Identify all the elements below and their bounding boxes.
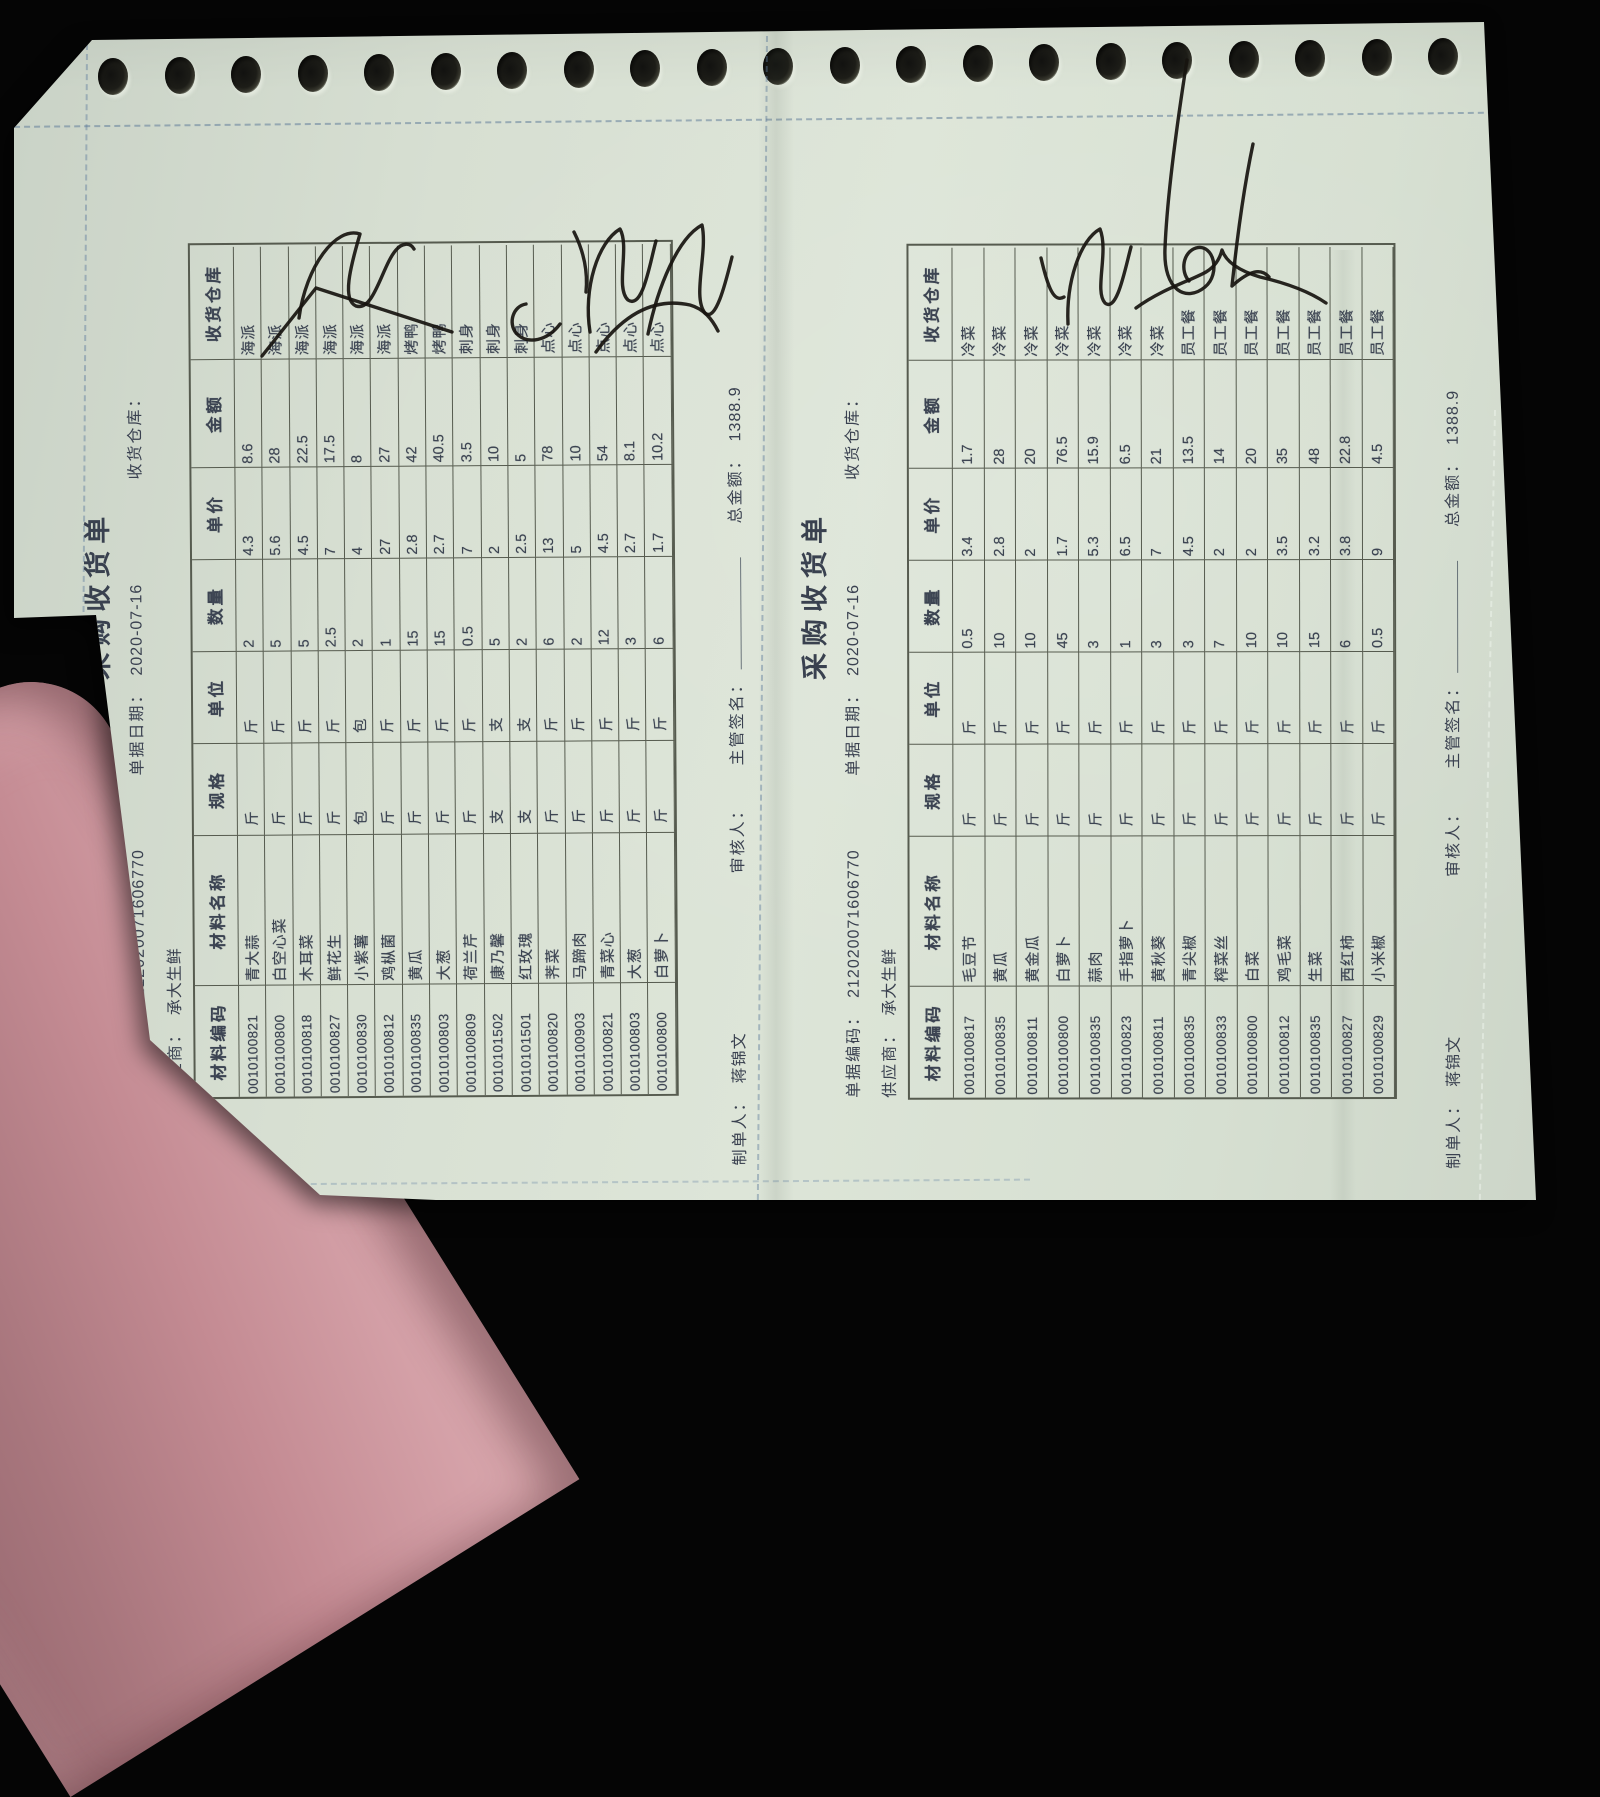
table-cell: 海派 — [316, 246, 344, 358]
table-cell: 斤 — [565, 740, 593, 832]
preparer-value: 蒋锦文 — [1446, 1036, 1463, 1087]
table-cell: 斤 — [319, 650, 347, 742]
table-cell: 斤 — [1300, 743, 1332, 835]
perforation-line-bottom — [150, 1179, 1030, 1186]
table-cell: 0010100835 — [1174, 985, 1206, 1097]
table-cell: 21 — [1142, 359, 1174, 467]
table-cell: 0010100800 — [648, 982, 676, 1094]
table-cell: 2.5 — [508, 465, 536, 557]
table-cell: 斤 — [646, 648, 674, 740]
table-cell: 2 — [236, 559, 264, 651]
total-field: 总金额：1388.9 — [1439, 390, 1463, 527]
table-cell: 0010100827 — [1332, 985, 1364, 1097]
table-cell: 0010100830 — [348, 984, 376, 1096]
table-cell: 15 — [400, 558, 428, 650]
table-cell: 荠菜 — [538, 833, 566, 983]
doc-date-label: 单据日期： — [845, 686, 862, 776]
table-cell: 斤 — [592, 740, 620, 832]
table-cell: 木耳菜 — [293, 834, 321, 984]
column-header: 单位 — [909, 652, 953, 744]
table-cell: 海派 — [288, 246, 316, 358]
table-cell: 2 — [1236, 467, 1268, 559]
items-table: 材料编码材料名称规格单位数量单价金额收货仓库 0010100817毛豆节斤斤0.… — [906, 243, 1396, 1100]
preparer-label: 制单人： — [1446, 1097, 1463, 1169]
table-cell: 冷菜 — [1078, 247, 1110, 359]
table-cell: 斤 — [1142, 743, 1174, 835]
preparer-value: 蒋锦文 — [731, 1032, 748, 1083]
table-cell: 10 — [1268, 559, 1300, 651]
table-cell: 冷菜 — [952, 248, 984, 360]
table-cell: 10.2 — [644, 356, 672, 464]
table-cell: 斤 — [1016, 652, 1048, 744]
table-cell: 1.7 — [953, 360, 985, 468]
table-cell: 马蹄肉 — [566, 832, 594, 982]
doc-code-value: 212020071606770 — [846, 849, 863, 998]
doc-code-label: 单据编码： — [846, 1008, 863, 1098]
column-header: 收货仓库 — [190, 247, 235, 359]
column-header: 数量 — [192, 559, 237, 651]
doc-code-value: 212020071606770 — [130, 849, 148, 998]
table-cell: 斤 — [953, 744, 985, 836]
table-cell: 斤 — [985, 744, 1017, 836]
receipt-page-right: 采购收货单 单据编码：212020071606770 单据日期：2020-07-… — [790, 47, 1492, 1128]
table-cell: 8.6 — [235, 359, 263, 467]
column-header: 规格 — [193, 743, 238, 835]
doc-code-field: 单据编码：212020071606770 — [124, 849, 150, 1098]
table-cell: 青菜心 — [593, 832, 621, 982]
manager-signature-field: 主管签名： — [722, 557, 747, 765]
table-cell: 冷菜 — [984, 248, 1016, 360]
table-cell: 6 — [645, 556, 673, 648]
table-cell: 青尖椒 — [1174, 835, 1206, 985]
table-cell: 斤 — [564, 648, 592, 740]
table-cell: 斤 — [619, 648, 647, 740]
column-header: 单价 — [909, 468, 953, 560]
signature-line — [727, 557, 742, 669]
table-cell: 1.7 — [645, 464, 673, 556]
table-cell: 斤 — [428, 741, 456, 833]
table-cell: 5 — [263, 559, 291, 651]
table-cell: 0.5 — [454, 557, 482, 649]
table-cell: 0010100833 — [1206, 985, 1238, 1097]
registration-tick — [1350, 4, 1352, 18]
table-cell: 海派 — [261, 247, 289, 359]
table-cell: 鲜花生 — [320, 834, 348, 984]
table-cell: 黄瓜 — [402, 834, 430, 984]
table-cell: 3.5 — [1268, 467, 1300, 559]
preparer-field: 制单人：蒋锦文 — [725, 1032, 750, 1165]
column-header: 收货仓库 — [908, 248, 952, 360]
table-cell: 6.5 — [1110, 467, 1142, 559]
table-cell: 白萝卜 — [647, 832, 675, 982]
table-cell: 10 — [1016, 560, 1048, 652]
table-cell: 6 — [1331, 559, 1363, 651]
table-cell: 手指萝卜 — [1111, 835, 1143, 985]
photo-scene: 采购收货单 单据编码：212020071606770 单据日期：2020-07-… — [0, 0, 1600, 1200]
manager-signature-label: 主管签名： — [1445, 679, 1462, 769]
table-cell: 2.8 — [984, 468, 1016, 560]
table-cell: 4 — [345, 466, 373, 558]
table-cell: 冷菜 — [1047, 247, 1079, 359]
table-cell: 斤 — [373, 650, 401, 742]
table-cell: 35 — [1268, 359, 1300, 467]
table-cell: 斤 — [428, 649, 456, 741]
manager-signature-label: 主管签名： — [729, 675, 747, 765]
table-cell: 0010100835 — [1080, 985, 1112, 1097]
table-cell: 5 — [482, 557, 510, 649]
table-cell: 斤 — [1174, 651, 1206, 743]
table-cell: 斤 — [592, 648, 620, 740]
table-cell: 斤 — [401, 742, 429, 834]
column-header: 材料名称 — [194, 835, 239, 985]
table-cell: 2.7 — [618, 464, 646, 556]
table-cell: 斤 — [292, 742, 320, 834]
table-cell: 0.5 — [1363, 559, 1395, 651]
table-cell: 0010100827 — [321, 984, 349, 1096]
column-header: 金额 — [191, 359, 236, 467]
total-field: 总金额：1388.9 — [721, 386, 746, 523]
table-cell: 22.5 — [289, 358, 317, 466]
table-cell: 7 — [1205, 559, 1237, 651]
table-cell: 点心 — [616, 244, 644, 356]
table-cell: 小米椒 — [1363, 835, 1395, 985]
table-cell: 海派 — [343, 246, 371, 358]
table-cell: 斤 — [1205, 743, 1237, 835]
warehouse-label: 收货仓库： — [127, 390, 145, 480]
supplier-field: 供应商：承大生鲜 — [161, 947, 186, 1097]
table-cell: 红玫瑰 — [511, 833, 539, 983]
table-cell: 5 — [508, 357, 536, 465]
table-cell: 13 — [536, 465, 564, 557]
table-cell: 包 — [347, 742, 375, 834]
table-cell: 2.8 — [399, 466, 427, 558]
table-cell: 榨菜丝 — [1205, 835, 1237, 985]
total-label: 总金额： — [727, 451, 745, 523]
table-cell: 4.5 — [1173, 467, 1205, 559]
supplier-value: 承大生鲜 — [882, 948, 899, 1016]
table-cell: 0010100800 — [1237, 985, 1269, 1097]
table-cell: 12 — [591, 556, 619, 648]
table-header-row: 材料编码材料名称规格单位数量单价金额收货仓库 — [190, 245, 240, 1097]
table-cell: 3 — [618, 556, 646, 648]
table-cell: 支 — [482, 649, 510, 741]
table-cell: 烤鸭 — [425, 245, 453, 357]
table-cell: 0010100817 — [954, 986, 986, 1098]
table-cell: 斤 — [237, 651, 265, 743]
table-cell: 斤 — [1048, 651, 1080, 743]
table-cell: 小紫薯 — [347, 834, 375, 984]
table-cell: 5 — [291, 558, 319, 650]
table-cell: 大葱 — [620, 832, 648, 982]
table-cell: 15 — [1300, 559, 1332, 651]
table-cell: 毛豆节 — [953, 836, 985, 986]
table-cell: 0010100835 — [985, 986, 1017, 1098]
table-cell: 4.5 — [1362, 359, 1394, 467]
registration-tick — [806, 10, 808, 24]
table-cell: 黄瓜 — [985, 836, 1017, 986]
table-body: 0010100817毛豆节斤斤0.53.41.7冷菜0010100835黄瓜斤斤… — [952, 245, 1394, 1098]
table-cell: 0010100818 — [294, 984, 322, 1096]
table-cell: 蒜肉 — [1079, 835, 1111, 985]
table-cell: 2.5 — [318, 558, 346, 650]
table-cell: 刺身 — [507, 245, 535, 357]
table-body: 0010100821青大蒜斤斤24.38.6海派0010100800白空心菜斤斤… — [234, 242, 677, 1097]
table-cell: 28 — [984, 360, 1016, 468]
table-cell: 6 — [536, 557, 564, 649]
table-cell: 0010100800 — [1048, 985, 1080, 1097]
table-cell: 斤 — [1331, 651, 1363, 743]
table-cell: 斤 — [1237, 651, 1269, 743]
table-cell: 3 — [1142, 559, 1174, 651]
table-cell: 斤 — [237, 743, 265, 835]
table-cell: 西红柿 — [1331, 835, 1363, 985]
table-cell: 0010100829 — [1363, 985, 1395, 1097]
preparer-field: 制单人：蒋锦文 — [1440, 1036, 1464, 1169]
table-cell: 27 — [371, 358, 399, 466]
total-value: 1388.9 — [1445, 390, 1462, 445]
table-cell: 0010100811 — [1143, 985, 1175, 1097]
table-cell: 斤 — [456, 741, 484, 833]
table-cell: 40.5 — [426, 357, 454, 465]
table-cell: 点心 — [643, 244, 671, 356]
table-cell: 0010100835 — [403, 984, 431, 1096]
table-cell: 斤 — [1142, 651, 1174, 743]
table-cell: 1 — [373, 558, 401, 650]
table-cell: 烤鸭 — [398, 246, 426, 358]
page-title: 采购收货单 — [793, 510, 832, 680]
table-cell: 5 — [563, 464, 591, 556]
table-cell: 17.5 — [317, 358, 345, 466]
table-cell: 斤 — [1048, 743, 1080, 835]
table-cell: 20 — [1016, 360, 1048, 468]
table-cell: 荷兰芹 — [456, 833, 484, 983]
preparer-label: 制单人： — [732, 1093, 750, 1165]
column-header: 规格 — [909, 744, 953, 836]
table-cell: 斤 — [985, 652, 1017, 744]
manager-signature-field: 主管签名： — [1439, 561, 1463, 769]
table-cell: 斤 — [1079, 743, 1111, 835]
table-cell: 鸡枞菌 — [374, 834, 402, 984]
table-cell: 鸡毛菜 — [1268, 835, 1300, 985]
table-cell: 斤 — [619, 740, 647, 832]
column-header: 材料编码 — [195, 985, 240, 1097]
table-cell: 14 — [1205, 359, 1237, 467]
table-cell: 冷菜 — [1110, 247, 1142, 359]
registration-tick — [688, 8, 690, 22]
table-cell: 点心 — [534, 245, 562, 357]
table-cell: 支 — [510, 741, 538, 833]
table-cell: 13.5 — [1173, 359, 1205, 467]
table-cell: 0010100903 — [567, 982, 595, 1094]
table-cell: 斤 — [1331, 743, 1363, 835]
table-cell: 0010101501 — [512, 983, 540, 1095]
table-cell: 斤 — [1174, 743, 1206, 835]
table-cell: 斤 — [455, 649, 483, 741]
table-cell: 42 — [398, 358, 426, 466]
table-cell: 76.5 — [1047, 359, 1079, 467]
doc-date-field: 单据日期：2020-07-16 — [839, 584, 863, 776]
reviewer-label: 审核人： — [1445, 805, 1462, 877]
table-cell: 黄秋葵 — [1142, 835, 1174, 985]
table-cell: 4.3 — [235, 467, 263, 559]
doc-code-field: 单据编码：212020071606770 — [840, 849, 864, 1098]
doc-code-label: 单据编码： — [131, 1007, 149, 1097]
table-cell: 0010100821 — [239, 985, 267, 1097]
table-cell: 3.2 — [1299, 467, 1331, 559]
table-cell: 斤 — [1363, 651, 1395, 743]
table-cell: 包 — [346, 650, 374, 742]
reviewer-field: 审核人： — [724, 801, 749, 873]
table-cell: 员工餐 — [1330, 247, 1362, 359]
table-cell: 0010100812 — [375, 984, 403, 1096]
table-cell: 点心 — [589, 244, 617, 356]
table-cell: 青大蒜 — [238, 835, 266, 985]
warehouse-label: 收货仓库： — [845, 390, 862, 480]
table-cell: 员工餐 — [1299, 247, 1331, 359]
table-cell: 0010100800 — [266, 984, 294, 1096]
table-cell: 斤 — [1268, 743, 1300, 835]
table-cell: 2 — [481, 465, 509, 557]
table-cell: 3.5 — [453, 357, 481, 465]
supplier-label: 供应商： — [882, 1026, 899, 1098]
table-cell: 斤 — [291, 650, 319, 742]
table-cell: 员工餐 — [1362, 247, 1394, 359]
registration-tick — [158, 6, 160, 20]
table-cell: 斤 — [1300, 651, 1332, 743]
table-cell: 0010100803 — [430, 983, 458, 1095]
table-cell: 斤 — [265, 742, 293, 834]
table-cell: 54 — [589, 356, 617, 464]
table-cell: 7 — [454, 465, 482, 557]
table-cell: 海派 — [234, 247, 262, 359]
table-cell: 27 — [372, 466, 400, 558]
table-cell: 0.5 — [953, 560, 985, 652]
column-header: 材料编码 — [910, 986, 954, 1098]
total-value: 1388.9 — [727, 386, 744, 441]
table-cell: 20 — [1236, 359, 1268, 467]
column-header: 数量 — [909, 560, 953, 652]
table-cell: 45 — [1048, 559, 1080, 651]
table-cell: 生菜 — [1300, 835, 1332, 985]
column-header: 材料名称 — [909, 836, 953, 986]
table-cell: 斤 — [1205, 651, 1237, 743]
table-cell: 0010100811 — [1017, 986, 1049, 1098]
table-header-row: 材料编码材料名称规格单位数量单价金额收货仓库 — [908, 246, 953, 1098]
doc-date-value: 2020-07-16 — [845, 584, 862, 676]
table-cell: 28 — [262, 359, 290, 467]
table-cell: 斤 — [400, 650, 428, 742]
page-title: 采购收货单 — [76, 510, 116, 680]
table-cell: 员工餐 — [1173, 247, 1205, 359]
column-header: 单位 — [193, 651, 238, 743]
table-cell: 斤 — [1111, 651, 1143, 743]
table-cell: 0010100809 — [457, 983, 485, 1095]
table-cell: 15.9 — [1079, 359, 1111, 467]
table-cell: 48 — [1299, 359, 1331, 467]
table-cell: 10 — [562, 356, 590, 464]
table-cell: 8 — [344, 358, 372, 466]
table-cell: 6.5 — [1110, 359, 1142, 467]
signature-line — [1444, 561, 1458, 673]
table-cell: 0010100821 — [594, 982, 622, 1094]
table-cell: 1.7 — [1047, 467, 1079, 559]
receipt-page-left: 采购收货单 单据编码：212020071606770 单据日期：2020-07-… — [70, 43, 778, 1128]
table-cell: 斤 — [374, 742, 402, 834]
table-cell: 斤 — [1363, 743, 1395, 835]
table-cell: 康乃馨 — [484, 833, 512, 983]
table-cell: 1 — [1111, 559, 1143, 651]
table-cell: 2 — [564, 556, 592, 648]
table-cell: 员工餐 — [1204, 247, 1236, 359]
column-header: 金额 — [909, 360, 953, 468]
continuous-form-paper: 采购收货单 单据编码：212020071606770 单据日期：2020-07-… — [0, 0, 1600, 1200]
warehouse-field: 收货仓库： — [839, 390, 863, 480]
reviewer-field: 审核人： — [1439, 805, 1463, 877]
table-cell: 海派 — [370, 246, 398, 358]
table-cell: 7 — [317, 466, 345, 558]
table-cell: 斤 — [953, 652, 985, 744]
table-cell: 2 — [509, 557, 537, 649]
table-cell: 9 — [1362, 467, 1394, 559]
table-cell: 3.4 — [953, 468, 985, 560]
supplier-label: 供应商： — [167, 1025, 185, 1097]
table-cell: 0010100820 — [539, 983, 567, 1095]
table-cell: 白空心菜 — [265, 834, 293, 984]
table-cell: 3 — [1079, 559, 1111, 651]
table-cell: 斤 — [1268, 651, 1300, 743]
table-cell: 8.1 — [617, 356, 645, 464]
items-table: 材料编码材料名称规格单位数量单价金额收货仓库 0010100821青大蒜斤斤24… — [188, 240, 679, 1099]
column-header: 单价 — [191, 467, 236, 559]
supplier-value: 承大生鲜 — [167, 947, 184, 1015]
table-cell: 斤 — [1016, 744, 1048, 836]
table-cell: 刺身 — [452, 245, 480, 357]
table-cell: 斤 — [1111, 743, 1143, 835]
table-cell: 5.3 — [1079, 467, 1111, 559]
table-cell: 支 — [510, 649, 538, 741]
table-cell: 0010101502 — [485, 983, 513, 1095]
table-cell: 黄金瓜 — [1016, 836, 1048, 986]
table-cell: 2 — [1205, 467, 1237, 559]
table-cell: 冷菜 — [1141, 247, 1173, 359]
doc-date-label: 单据日期： — [129, 685, 147, 775]
table-cell: 支 — [483, 741, 511, 833]
table-cell: 10 — [1237, 559, 1269, 651]
table-cell: 7 — [1142, 467, 1174, 559]
supplier-field: 供应商：承大生鲜 — [876, 948, 900, 1098]
table-cell: 0010100835 — [1300, 985, 1332, 1097]
reviewer-label: 审核人： — [730, 801, 748, 873]
table-cell: 0010100803 — [621, 982, 649, 1094]
table-cell: 员工餐 — [1267, 247, 1299, 359]
table-cell: 78 — [535, 357, 563, 465]
table-cell: 2 — [1016, 468, 1048, 560]
table-cell: 3 — [1174, 559, 1206, 651]
table-cell: 斤 — [1237, 743, 1269, 835]
table-cell: 白萝卜 — [1048, 835, 1080, 985]
table-cell: 冷菜 — [1015, 248, 1047, 360]
table-cell: 白菜 — [1237, 835, 1269, 985]
doc-date-value: 2020-07-16 — [128, 584, 146, 676]
table-cell: 2 — [345, 558, 373, 650]
table-cell: 10 — [985, 560, 1017, 652]
table-cell: 斤 — [538, 741, 566, 833]
table-cell: 22.8 — [1331, 359, 1363, 467]
table-cell: 4.5 — [290, 466, 318, 558]
paper-wrapper: 采购收货单 单据编码：212020071606770 单据日期：2020-07-… — [0, 0, 1600, 1200]
table-cell: 2.7 — [426, 465, 454, 557]
doc-date-field: 单据日期：2020-07-16 — [122, 584, 147, 776]
